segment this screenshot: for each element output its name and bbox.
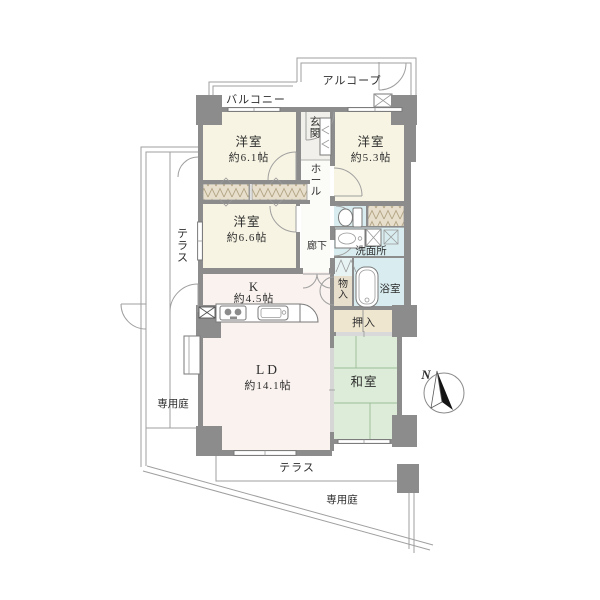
upper-closet-hatch bbox=[368, 203, 404, 227]
alcove-door-arc bbox=[379, 62, 406, 90]
balcony-label: バルコニー bbox=[226, 93, 286, 106]
compass: N bbox=[420, 367, 464, 413]
hall-label: ホール bbox=[311, 163, 322, 198]
window bbox=[234, 451, 296, 456]
kitchen-name: K bbox=[249, 280, 259, 294]
bedroom-66-name: 洋室 bbox=[233, 214, 260, 229]
kitchen-sink-icon bbox=[258, 306, 288, 320]
compass-north-label: N bbox=[420, 367, 431, 382]
pillar bbox=[397, 464, 419, 493]
bedroom-61-size: 約6.1帖 bbox=[229, 150, 270, 164]
closet-strip-right-hatch bbox=[252, 184, 307, 200]
pillar bbox=[392, 415, 417, 447]
window bbox=[198, 222, 203, 260]
floor-plan-canvas: N アルコープ バルコニー 洋室 約6.1帖 洋室 約5.3帖 玄関 ホール 洋… bbox=[0, 0, 600, 600]
floor-plan-svg: N アルコープ バルコニー 洋室 約6.1帖 洋室 約5.3帖 玄関 ホール 洋… bbox=[0, 0, 600, 600]
terrace-west-label: テラス bbox=[177, 228, 189, 264]
storage-label: 物入 bbox=[338, 277, 348, 301]
bedroom-53-size: 約5.3帖 bbox=[351, 150, 392, 164]
washing-machine-icon bbox=[366, 229, 381, 246]
bedroom-61-name: 洋室 bbox=[235, 134, 262, 149]
refrigerator-icon bbox=[199, 307, 215, 318]
stove-icon bbox=[220, 306, 246, 320]
terrace-south-label: テラス bbox=[279, 462, 315, 474]
kitchen-terrace-door-arc bbox=[170, 284, 198, 312]
window bbox=[348, 108, 402, 112]
bathtub-icon bbox=[356, 267, 378, 307]
bay-window bbox=[184, 336, 200, 374]
kitchen-size: 約4.5帖 bbox=[234, 291, 275, 305]
meter-box-icon bbox=[374, 94, 392, 107]
window bbox=[228, 108, 280, 112]
bedroom-66-size: 約6.6帖 bbox=[227, 230, 268, 244]
bedroom-61-terrace-door-arc bbox=[178, 157, 198, 177]
living-dining-name: LD bbox=[256, 362, 280, 377]
alcove-label: アルコープ bbox=[322, 74, 381, 87]
closet-label: 押入 bbox=[352, 315, 376, 329]
pillar bbox=[196, 95, 222, 125]
washroom-label: 洗面所 bbox=[355, 245, 387, 257]
entrance-label: 玄関 bbox=[310, 115, 321, 139]
pillar bbox=[196, 426, 222, 456]
shoe-cabinet-icon bbox=[320, 118, 331, 155]
toilet-icon bbox=[339, 208, 363, 227]
window bbox=[338, 440, 390, 444]
washitsu-label: 和室 bbox=[350, 374, 377, 389]
garden-south-label: 専用庭 bbox=[326, 493, 358, 506]
bedroom-53-name: 洋室 bbox=[357, 134, 384, 149]
garden-gate-door-arc bbox=[121, 304, 146, 329]
living-dining-size: 約14.1帖 bbox=[244, 378, 291, 392]
garden-west-label: 専用庭 bbox=[157, 397, 189, 410]
closet-strip-left-hatch bbox=[203, 184, 249, 200]
corridor-label: 廊下 bbox=[307, 239, 327, 252]
bathroom-label: 浴室 bbox=[380, 282, 401, 295]
